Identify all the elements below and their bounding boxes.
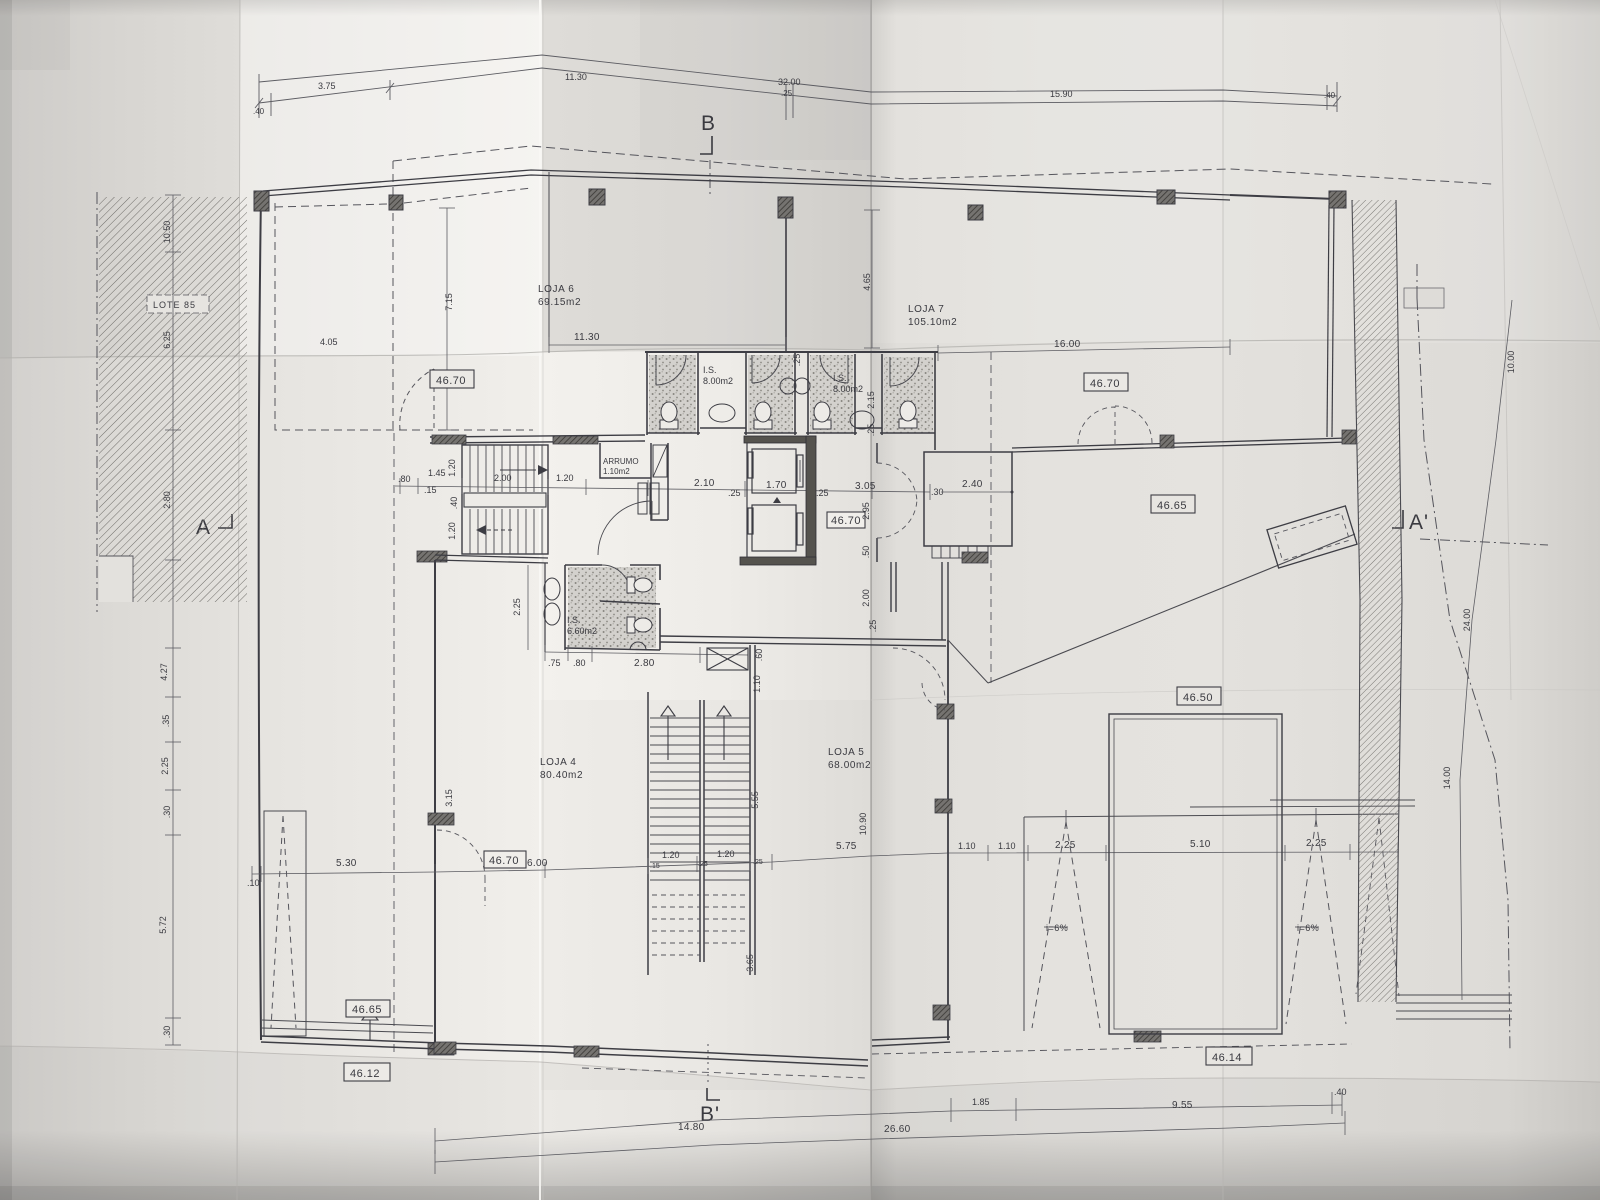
svg-text:14.00: 14.00 [1442,767,1452,790]
svg-text:11.30: 11.30 [565,72,587,82]
svg-text:.25: .25 [753,859,763,866]
svg-text:14.80: 14.80 [678,1122,705,1133]
svg-text:11.30: 11.30 [574,332,600,343]
svg-text:LOJA 7: LOJA 7 [908,304,944,315]
svg-text:2.25: 2.25 [1055,840,1076,851]
svg-text:6.60m2: 6.60m2 [567,626,597,636]
svg-text:16.00: 16.00 [1054,339,1081,350]
svg-text:46.70: 46.70 [489,855,519,867]
svg-text:LOTE 85: LOTE 85 [153,300,196,310]
svg-text:46.70: 46.70 [436,375,466,387]
svg-text:10.50: 10.50 [162,221,172,244]
svg-text:68.00m2: 68.00m2 [828,760,871,771]
svg-text:2.25: 2.25 [1306,838,1327,849]
svg-text:3.15: 3.15 [444,789,454,807]
svg-text:69.15m2: 69.15m2 [538,297,581,308]
svg-text:.25: .25 [868,620,878,633]
svg-text:9.55: 9.55 [1172,1100,1193,1111]
svg-text:1.20: 1.20 [447,459,457,477]
svg-text:8.00m2: 8.00m2 [833,384,863,394]
svg-text:4.27: 4.27 [159,663,169,681]
svg-text:24.00: 24.00 [1462,609,1472,632]
svg-text:1.20: 1.20 [717,849,735,859]
svg-text:2.10: 2.10 [694,478,715,489]
svg-text:46.50: 46.50 [1183,692,1213,704]
svg-text:6.00: 6.00 [527,858,548,869]
svg-text:i=6%: i=6% [1046,923,1068,933]
svg-text:2.25: 2.25 [160,757,170,775]
svg-text:2.25: 2.25 [512,598,522,616]
svg-text:ARRUMO: ARRUMO [603,457,639,466]
svg-text:A': A' [1409,511,1429,534]
svg-text:5.30: 5.30 [336,858,357,869]
svg-text:I.S.: I.S. [703,365,717,375]
svg-text:5.72: 5.72 [158,916,168,934]
svg-text:.40: .40 [253,107,265,116]
svg-text:105.10m2: 105.10m2 [908,317,957,328]
svg-text:80.40m2: 80.40m2 [540,770,583,781]
svg-text:3.75: 3.75 [318,81,336,91]
svg-text:.50: .50 [861,546,871,559]
svg-text:32.00: 32.00 [778,77,801,87]
svg-text:1.10m2: 1.10m2 [603,467,630,476]
svg-text:.30: .30 [162,1026,172,1039]
svg-text:46.70: 46.70 [831,515,861,527]
svg-text:1.10: 1.10 [958,841,976,851]
svg-text:.40: .40 [1324,91,1336,100]
svg-text:.40: .40 [1334,1087,1347,1097]
svg-text:1.85: 1.85 [972,1097,990,1107]
svg-text:LOJA 6: LOJA 6 [538,284,574,295]
svg-text:I.S.: I.S. [567,615,581,625]
svg-text:8.00m2: 8.00m2 [703,376,733,386]
svg-text:.40: .40 [449,497,459,510]
svg-text:46.70: 46.70 [1090,378,1120,390]
svg-text:10.00: 10.00 [1506,351,1516,374]
svg-text:6.25: 6.25 [162,331,172,349]
svg-text:.25: .25 [728,488,741,498]
svg-text:3.05: 3.05 [855,481,876,492]
svg-text:2.95: 2.95 [861,502,871,520]
svg-text:5.75: 5.75 [836,841,857,852]
svg-text:2.80: 2.80 [634,658,655,669]
svg-text:i=6%: i=6% [1297,923,1319,933]
svg-text:.15: .15 [650,863,660,870]
svg-text:1.20: 1.20 [556,473,574,483]
svg-text:1.45: 1.45 [428,468,446,478]
svg-text:.25: .25 [781,89,793,98]
svg-text:15.90: 15.90 [1050,89,1073,99]
svg-text:4.05: 4.05 [320,337,338,347]
svg-text:LOJA 4: LOJA 4 [540,757,576,768]
svg-text:46.65: 46.65 [1157,500,1187,512]
svg-text:.30: .30 [162,806,172,819]
svg-text:2.40: 2.40 [962,479,983,490]
svg-text:5.10: 5.10 [1190,839,1211,850]
svg-text:26.60: 26.60 [884,1124,911,1135]
svg-text:.10: .10 [247,878,260,888]
svg-text:1.10: 1.10 [998,841,1016,851]
svg-text:1.10: 1.10 [752,675,762,693]
svg-text:.25: .25 [698,861,708,868]
svg-text:.75: .75 [548,658,561,668]
svg-text:B: B [701,112,716,135]
svg-text:46.14: 46.14 [1212,1052,1242,1064]
svg-text:1.20: 1.20 [662,850,680,860]
svg-text:.80: .80 [573,658,586,668]
svg-text:1.20: 1.20 [447,522,457,540]
svg-text:I.S.: I.S. [833,373,847,383]
svg-text:2.00: 2.00 [494,473,512,483]
svg-text:7.15: 7.15 [444,293,454,311]
svg-text:.25: .25 [866,424,876,437]
svg-text:4.65: 4.65 [862,273,872,291]
svg-text:1.70: 1.70 [766,480,787,491]
svg-text:.25: .25 [792,354,802,367]
svg-text:2.00: 2.00 [861,589,871,607]
svg-text:46.12: 46.12 [350,1068,380,1080]
svg-text:2.80: 2.80 [162,491,172,509]
svg-text:10.90: 10.90 [858,813,868,836]
svg-text:.25: .25 [816,488,829,498]
svg-text:.35: .35 [161,715,171,728]
svg-text:46.65: 46.65 [352,1004,382,1016]
svg-text:LOJA 5: LOJA 5 [828,747,864,758]
svg-text:2.15: 2.15 [866,391,876,409]
